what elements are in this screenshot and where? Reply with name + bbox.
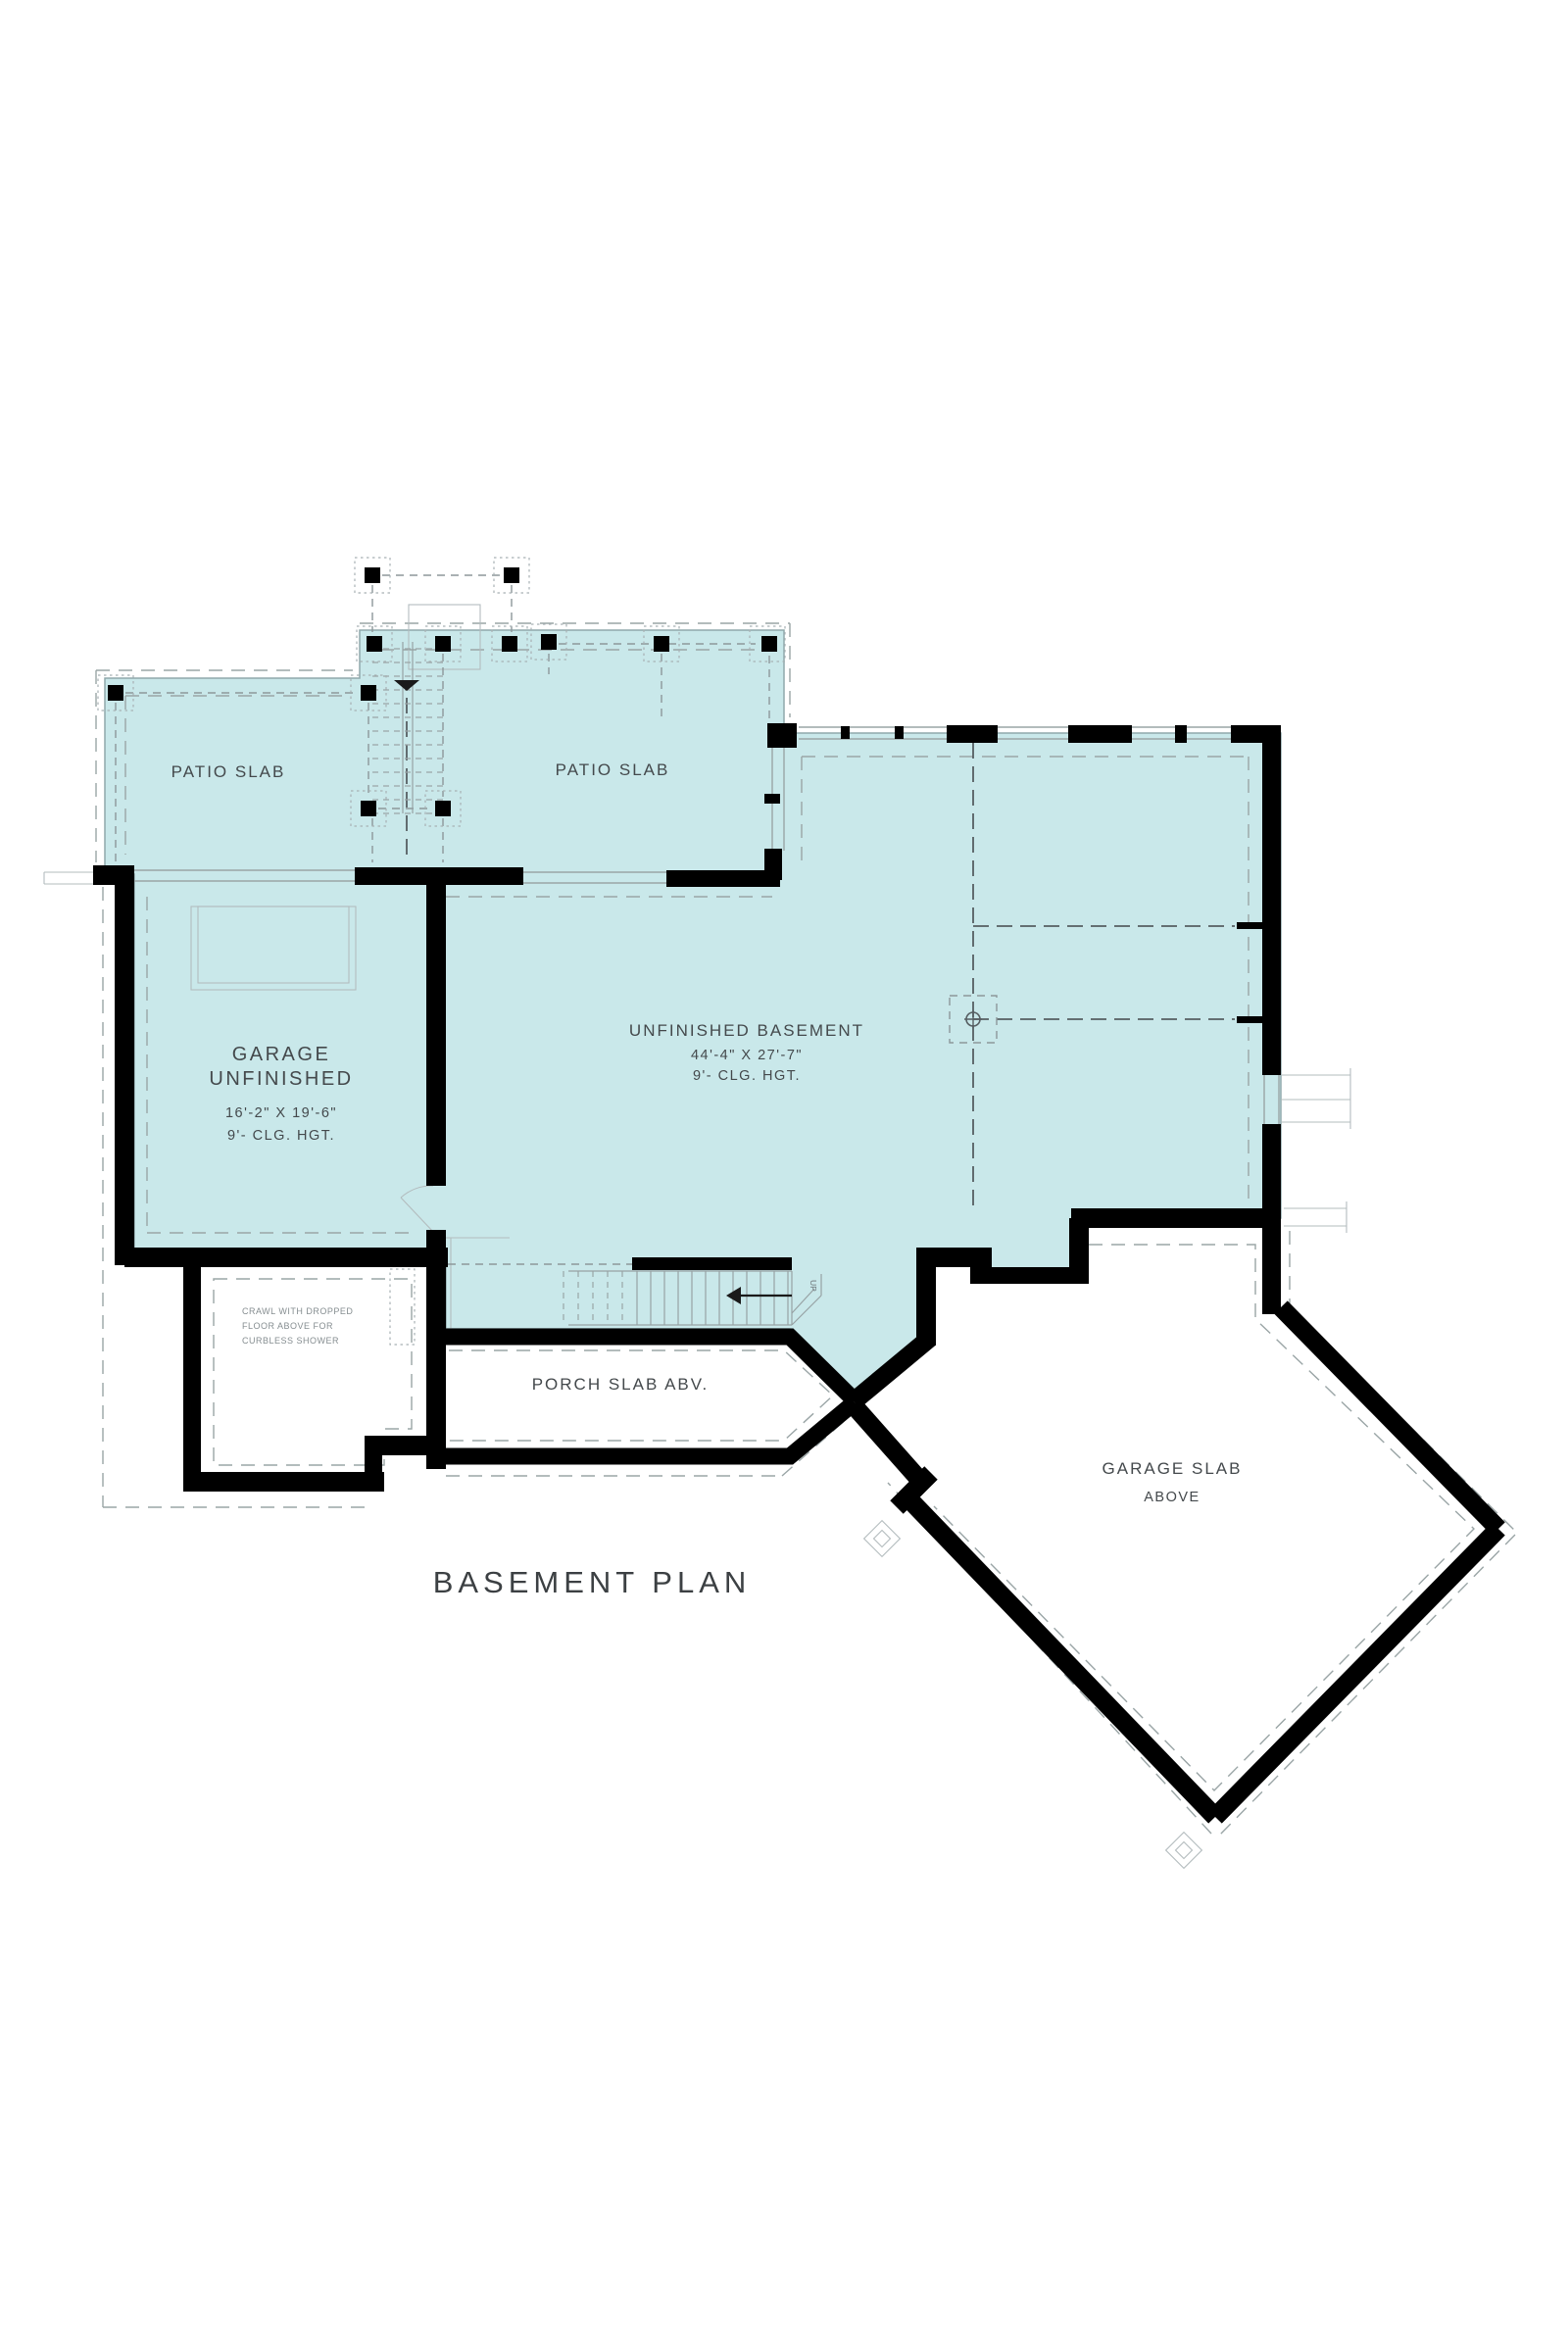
porch-label: PORCH SLAB ABV.	[532, 1375, 710, 1394]
garage-label-line2: UNFINISHED	[209, 1068, 353, 1090]
garage-ceiling: 9'- CLG. HGT.	[227, 1128, 335, 1144]
window-sliver-fill	[1264, 1075, 1280, 1124]
basement-dims: 44'-4" X 27'-7"	[691, 1048, 803, 1063]
survey-diamond-left	[864, 1521, 901, 1557]
survey-diamond-bottom	[1166, 1833, 1202, 1869]
basement-ceiling: 9'- CLG. HGT.	[693, 1068, 801, 1084]
crawl-note-line3: CURBLESS SHOWER	[242, 1336, 339, 1346]
garage-slab-label-line2: ABOVE	[1144, 1490, 1200, 1505]
porch-walls	[428, 1337, 855, 1456]
basement-label: UNFINISHED BASEMENT	[629, 1021, 864, 1040]
garage-label-line1: GARAGE	[232, 1044, 331, 1065]
floor-plan-drawing: UP	[0, 0, 1568, 2352]
basement-plan-page: UP	[0, 0, 1568, 2352]
crawl-note-line2: FLOOR ABOVE FOR	[242, 1321, 333, 1331]
crawl-note-line1: CRAWL WITH DROPPED	[242, 1306, 353, 1316]
patio-left-label: PATIO SLAB	[171, 762, 286, 781]
garage-dims: 16'-2" X 19'-6"	[225, 1105, 337, 1121]
basement-slab-fill	[105, 630, 1281, 1401]
crawl-chase-outline	[390, 1269, 415, 1345]
slab-fill-layer	[105, 630, 1281, 1401]
patio-right-label: PATIO SLAB	[556, 760, 670, 779]
plan-title: BASEMENT PLAN	[433, 1565, 752, 1599]
stairs-up-label: UP	[808, 1280, 818, 1292]
garage-slab-label-line1: GARAGE SLAB	[1102, 1459, 1243, 1478]
